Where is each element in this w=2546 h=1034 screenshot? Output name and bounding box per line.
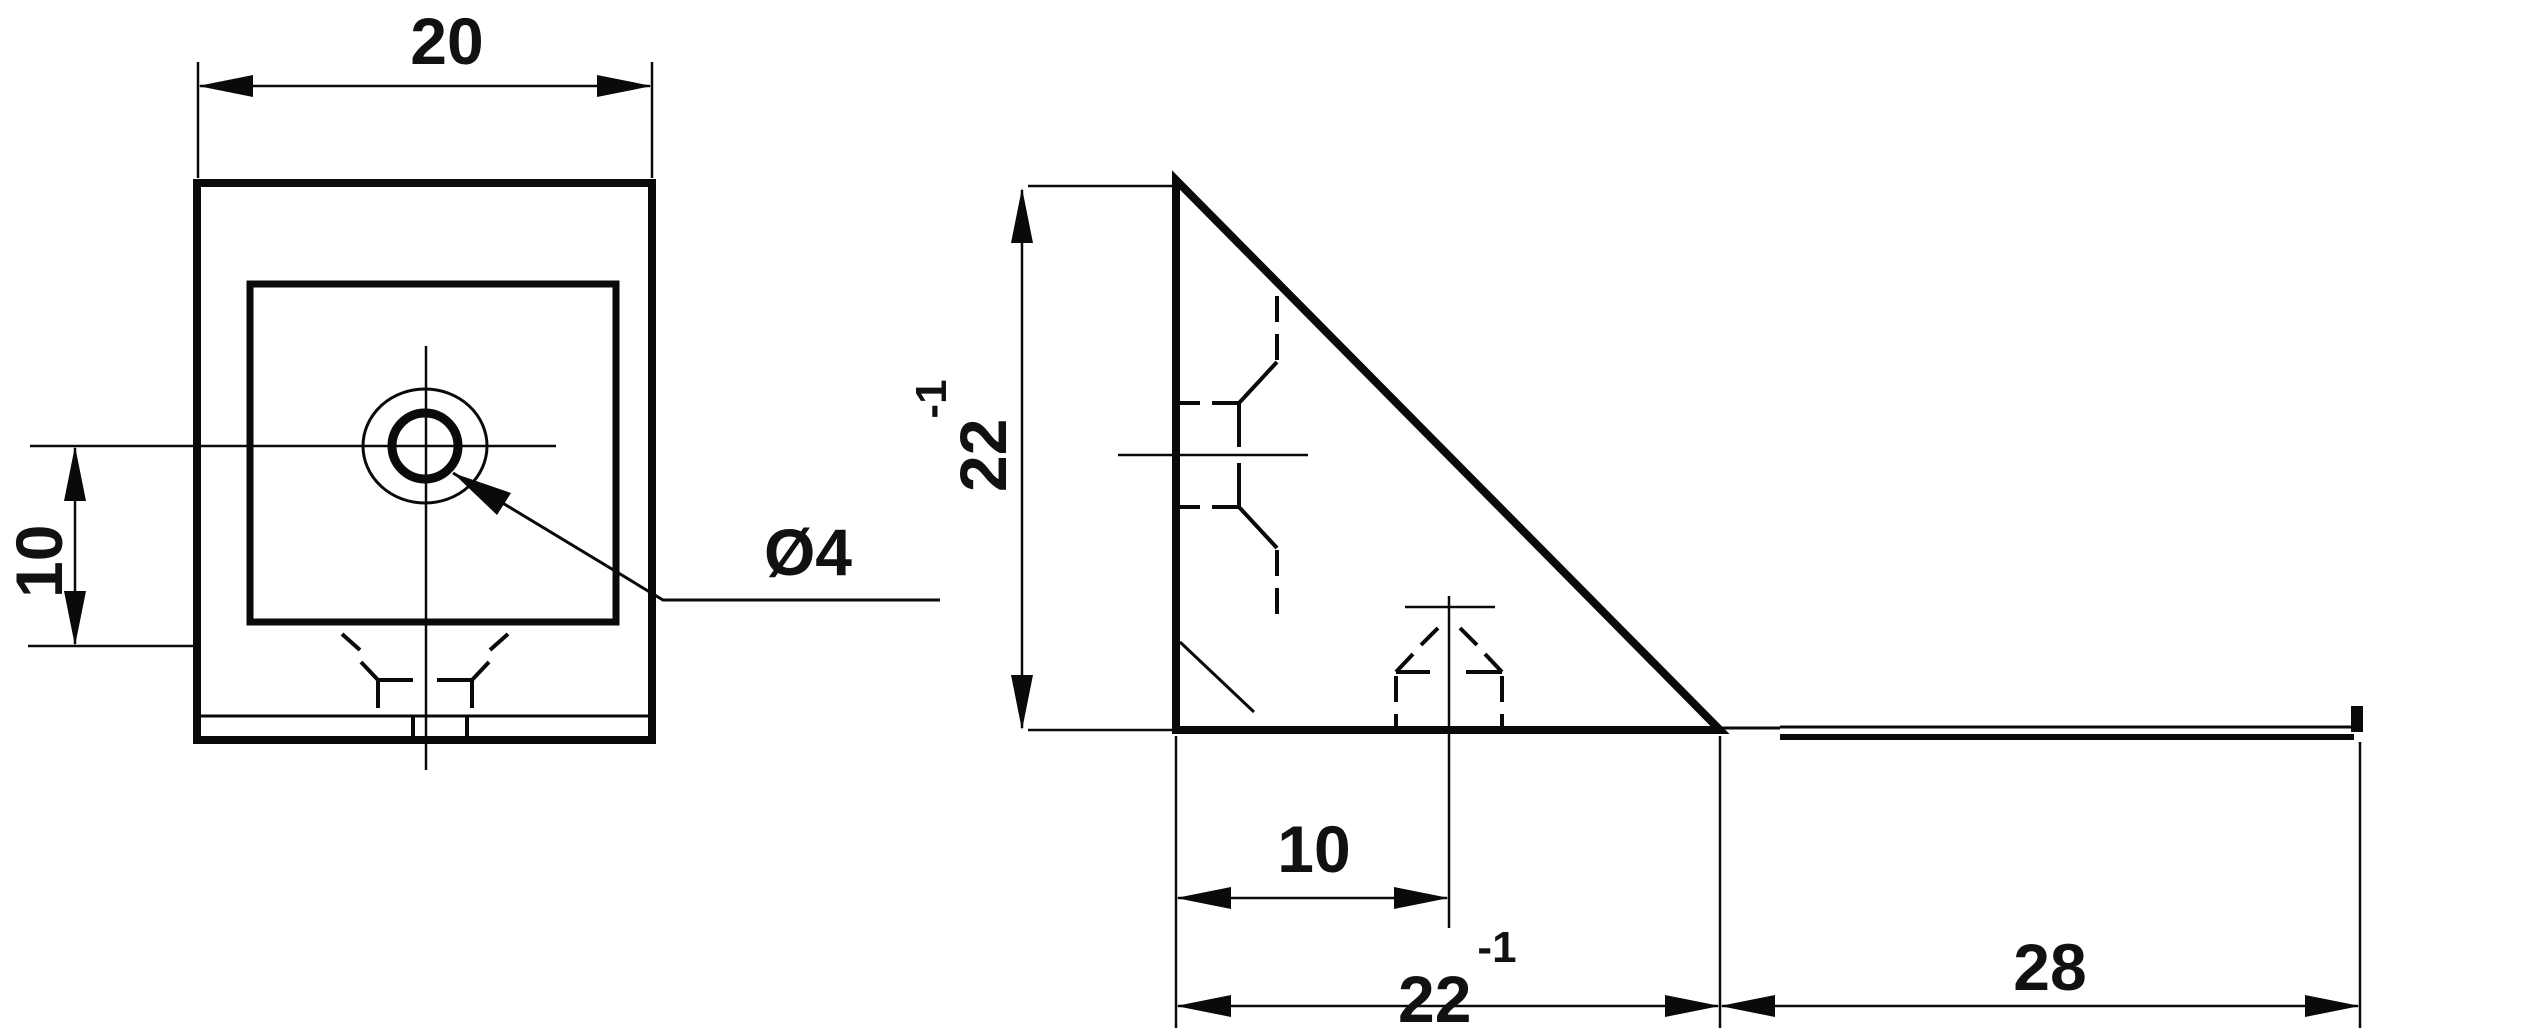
arrowhead: [1394, 887, 1449, 909]
front-view: [30, 183, 652, 770]
dim-text-side-offset: 10: [1277, 812, 1350, 886]
arrowhead: [1176, 995, 1231, 1017]
front-dimensions: 20 10 Ø4: [2, 4, 940, 646]
leader-line: [453, 473, 940, 600]
side-dimensions: 22-1 10 22-1 28: [907, 186, 2360, 1034]
technical-drawing: 20 10 Ø4: [0, 0, 2546, 1034]
corner-chamfer-line: [1180, 642, 1254, 712]
arrowhead: [1720, 995, 1775, 1017]
dim-text-side-flat: 28: [2013, 930, 2086, 1004]
front-outer-outline: [197, 183, 652, 740]
arrowhead: [2305, 995, 2360, 1017]
dim-text-hole-diameter: Ø4: [764, 515, 852, 589]
arrowhead: [64, 591, 86, 646]
dim-text-front-width: 20: [410, 4, 483, 78]
arrowhead: [198, 75, 253, 97]
drawing-canvas: 20 10 Ø4: [0, 0, 2546, 1034]
dim-text-side-base: 22-1: [1398, 923, 1517, 1034]
arrowhead: [597, 75, 652, 97]
arrowhead: [1176, 887, 1231, 909]
front-inner-outline: [250, 284, 616, 622]
arrowhead: [1665, 995, 1720, 1017]
arrowhead: [1011, 675, 1033, 730]
leader-arrowhead: [453, 473, 511, 515]
dim-text-front-offset: 10: [2, 525, 76, 598]
arrowhead: [64, 446, 86, 501]
strip-end-cap: [2351, 706, 2363, 732]
dim-text-side-height: 22-1: [907, 379, 1020, 492]
arrowhead: [1011, 188, 1033, 243]
